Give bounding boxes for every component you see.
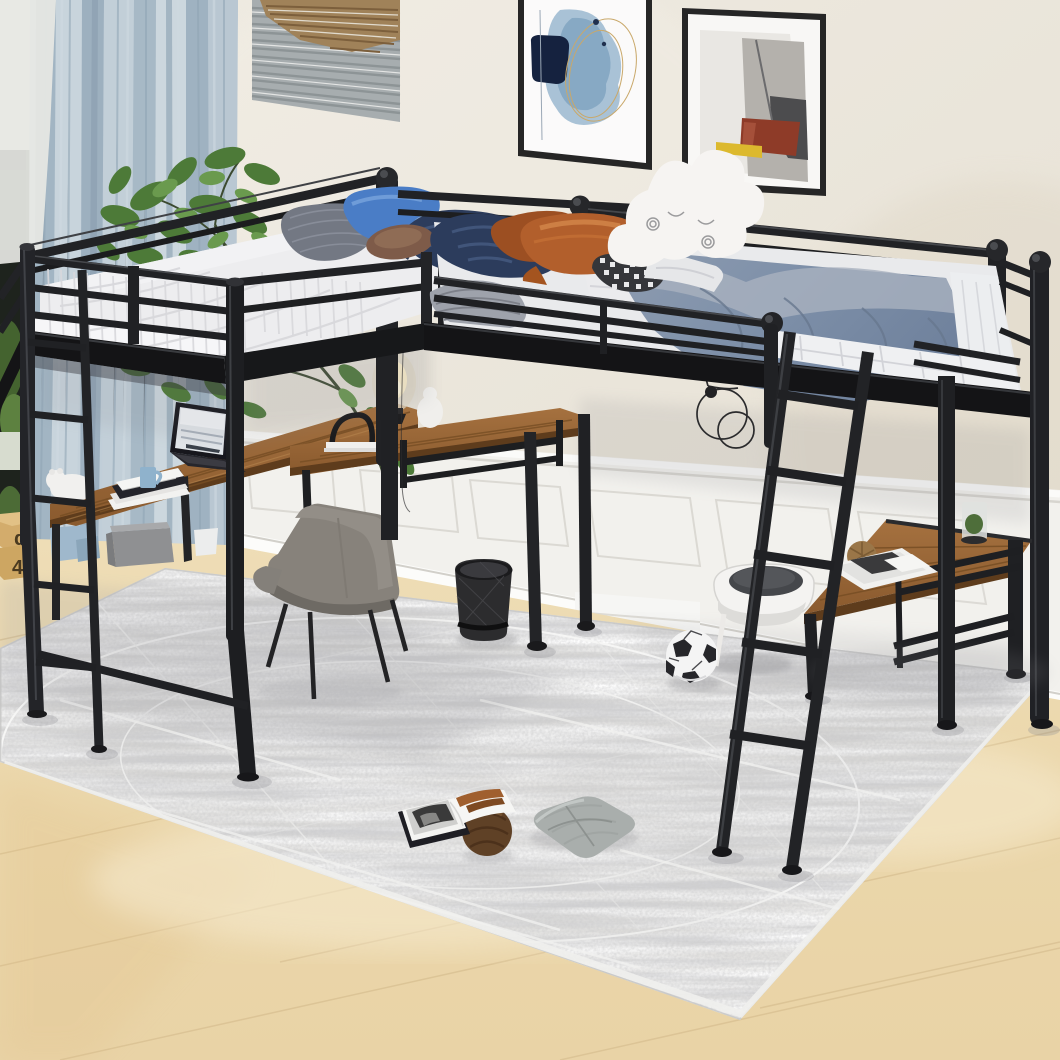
svg-text:4: 4 xyxy=(12,557,24,579)
